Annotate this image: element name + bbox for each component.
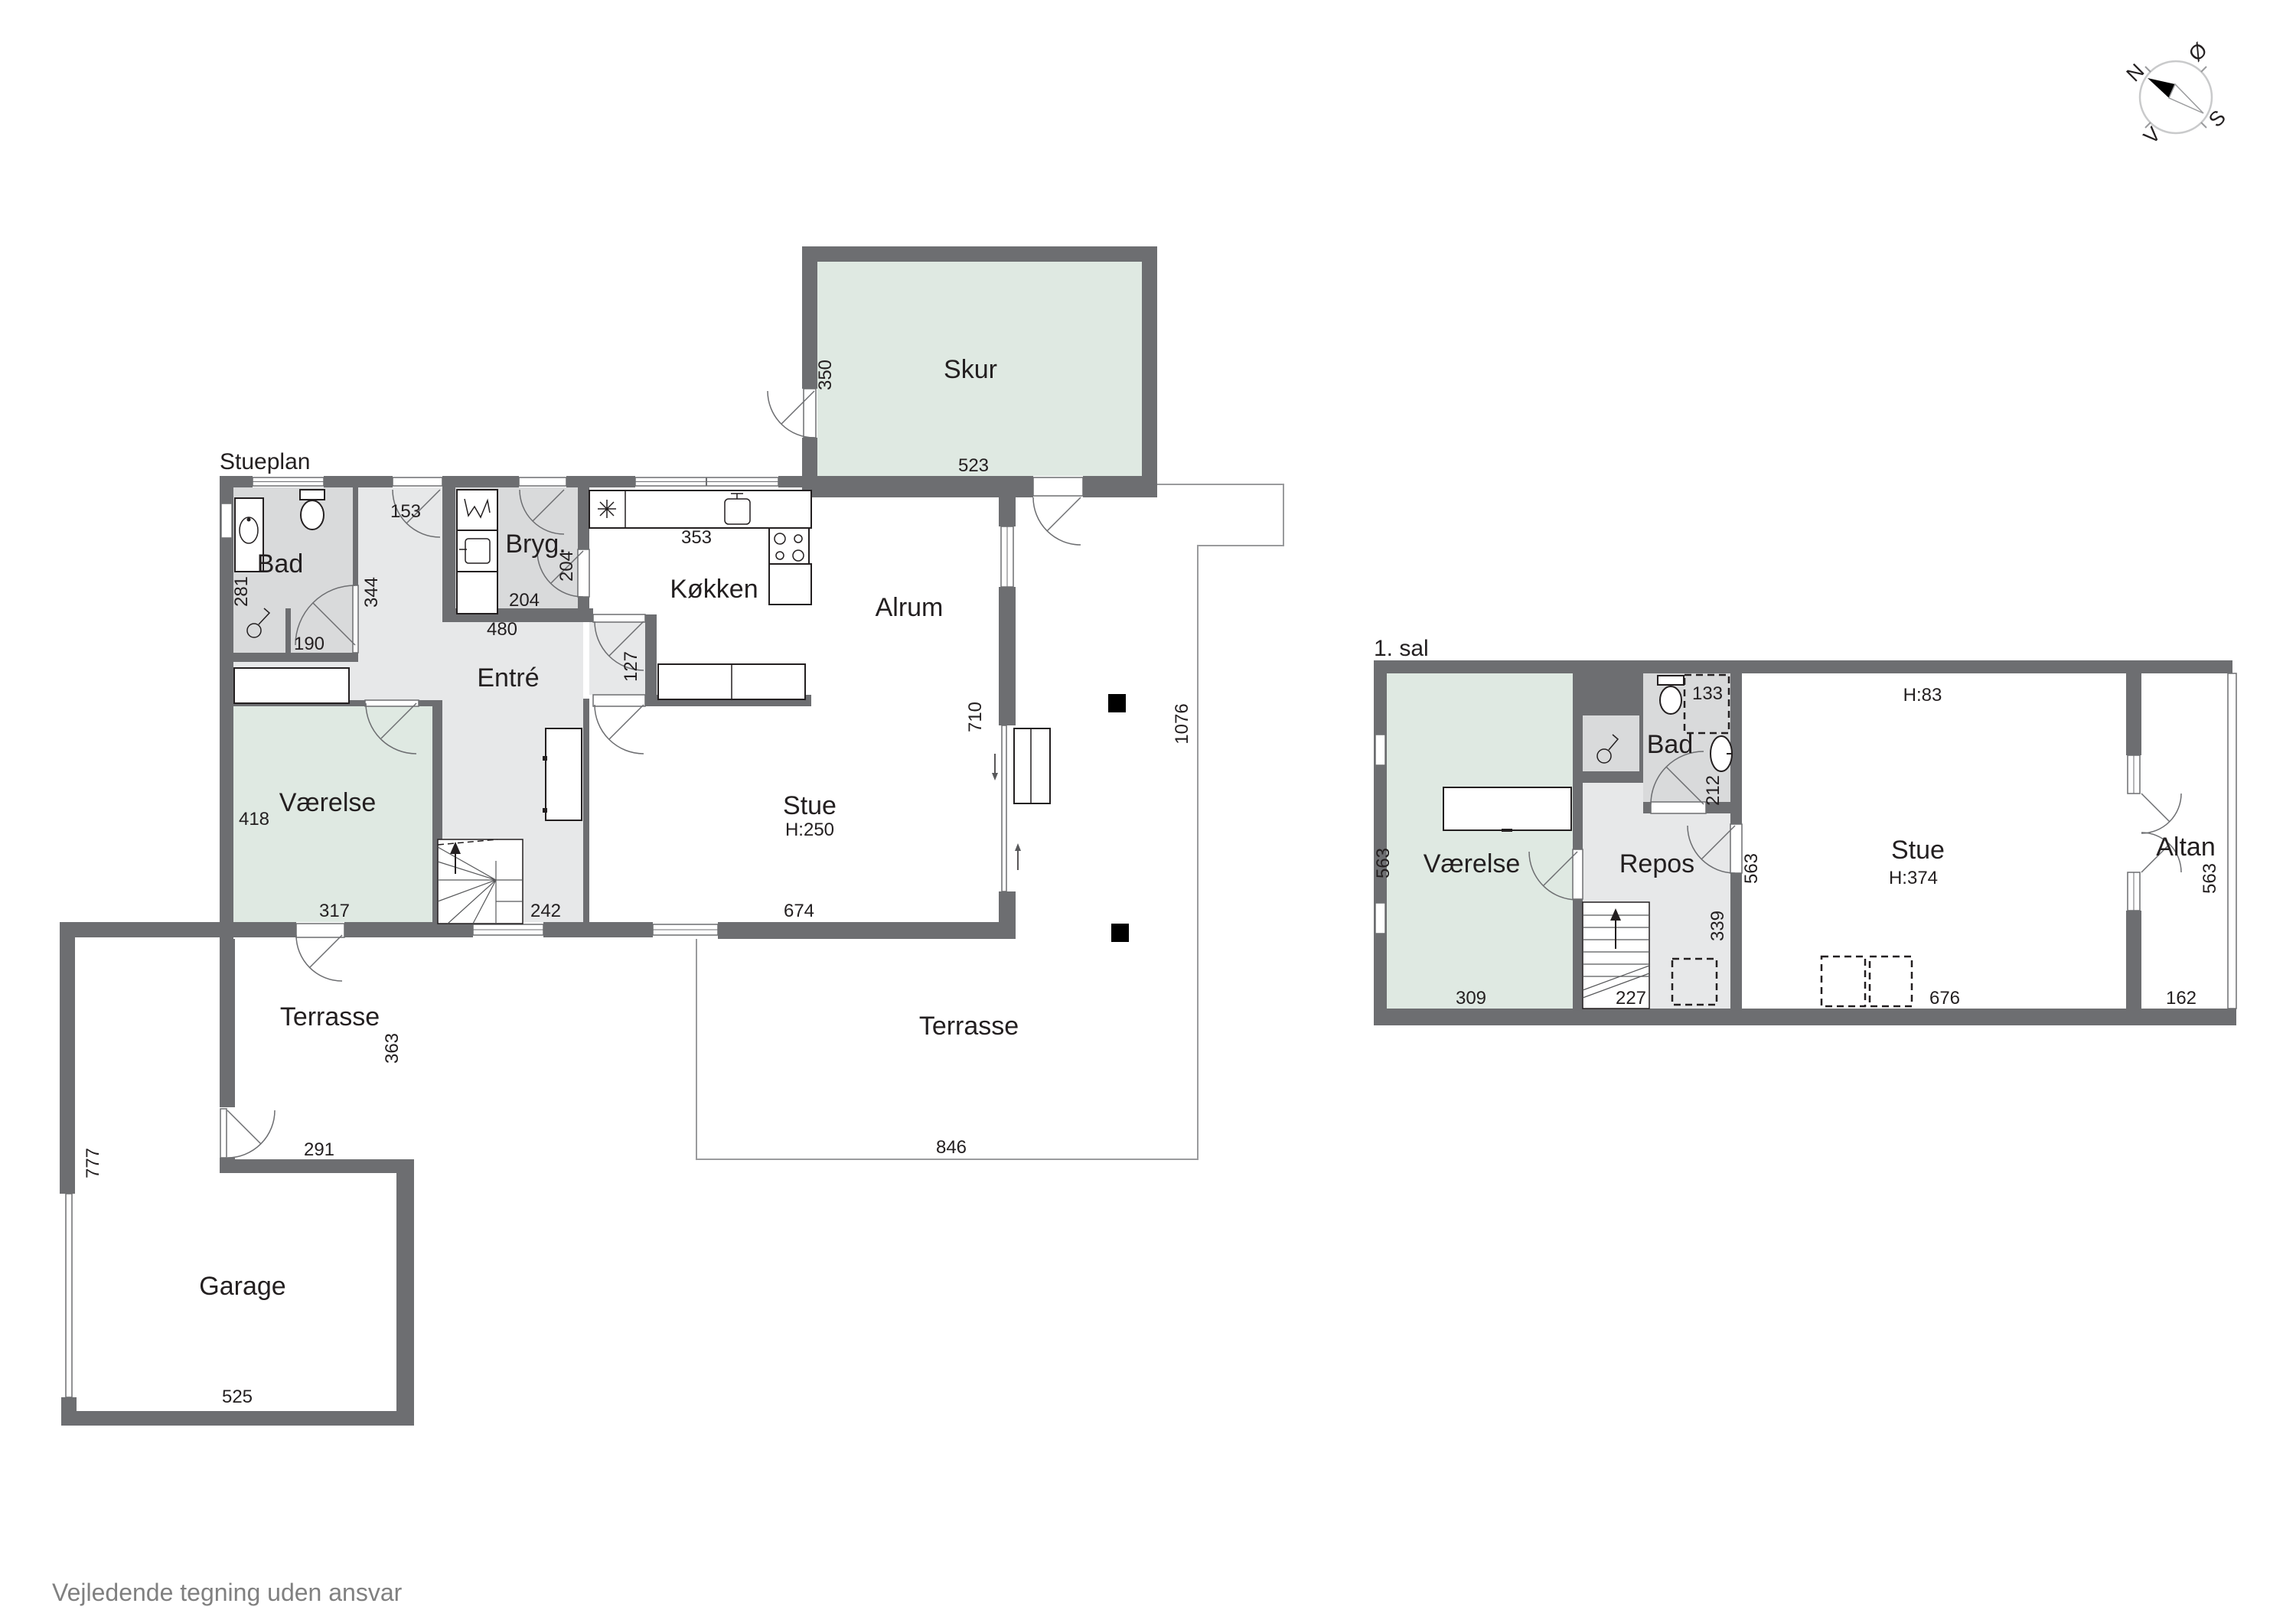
terrasse-main-label: Terrasse	[919, 1012, 1019, 1041]
upper-window-west-2	[1375, 903, 1385, 934]
window-south-stue	[653, 924, 718, 935]
compass-rose: N Ø S V	[2122, 38, 2229, 148]
upper-stair-width-dim: 227	[1616, 988, 1646, 1009]
kokken-width-dim: 353	[681, 527, 712, 548]
skur-width-dim: 523	[958, 455, 989, 476]
wardrobe-hall	[234, 668, 349, 703]
side-height-dim: 363	[382, 1033, 403, 1064]
vaerelse-height-dim: 418	[239, 809, 269, 829]
window-west-bad	[221, 504, 232, 538]
compass-north-label: N	[2122, 59, 2148, 86]
sideboard-stue	[1014, 728, 1050, 803]
toilet-icon	[300, 490, 325, 530]
laundry-icons	[457, 490, 497, 614]
upper-vaerelse-width-dim: 309	[1456, 988, 1486, 1009]
upper-vaerelse-height-dim: 563	[1373, 848, 1394, 878]
terrasse-side-label: Terrasse	[280, 1002, 380, 1031]
wardrobe-entre	[543, 728, 582, 820]
kokken-label: Køkken	[670, 575, 758, 604]
upper-bad-label: Bad	[1647, 730, 1694, 759]
terrasse-height-dim: 1076	[1172, 703, 1192, 744]
kitchen-cabinet	[769, 564, 811, 605]
upper-shower-niche-area	[1583, 715, 1639, 771]
terrasse-post-south	[1111, 924, 1129, 942]
upper-toilet-icon	[1658, 676, 1684, 714]
upper-title: 1. sal	[1374, 636, 1429, 661]
door-vaerelse-terrasse	[296, 924, 344, 981]
upper-stue-ceiling-label: H:374	[1889, 868, 1938, 888]
entre-label: Entré	[477, 663, 539, 693]
vaerelse-label: Værelse	[279, 788, 377, 817]
window-south-entre	[473, 924, 543, 935]
upper-knee-height-label: H:83	[1903, 685, 1942, 706]
upper-stue-width-dim: 676	[1929, 988, 1960, 1009]
ground-stair	[438, 839, 523, 924]
bryg-width-dim: 204	[509, 590, 540, 611]
kitchen-island	[658, 664, 805, 699]
altan-width-dim: 162	[2166, 988, 2197, 1009]
compass-east-label: Ø	[2184, 38, 2212, 66]
side-width-dim: 291	[304, 1139, 334, 1160]
compass-west-label: V	[2139, 122, 2165, 148]
floorplan-page: Stueplan Skur 350 523 Bad 281 344 190 15…	[0, 0, 2296, 1623]
stair-width-dim: 242	[530, 901, 561, 921]
stue-velux-dashed-1	[1821, 957, 1865, 1006]
garage-label: Garage	[199, 1272, 285, 1301]
compass-needle-icon	[2148, 78, 2203, 113]
skur-depth-dim: 350	[815, 360, 836, 390]
compass-south-label: S	[2204, 106, 2230, 132]
vaerelse-width-dim: 317	[319, 901, 350, 921]
altan-height-dim: 563	[2200, 863, 2220, 894]
upper-bad-height-dim: 212	[1703, 775, 1724, 806]
upper-window-altan-2	[2128, 872, 2140, 911]
upper-window-altan-1	[2128, 755, 2140, 794]
stue-velux-dashed-2	[1870, 957, 1912, 1006]
stue-height-label: H:250	[785, 820, 834, 840]
upper-shower-dim: 133	[1692, 683, 1723, 704]
window-north-kokken	[635, 477, 778, 486]
repos-label: Repos	[1619, 849, 1694, 878]
bad-label: Bad	[257, 549, 304, 578]
upper-window-west-1	[1375, 735, 1385, 765]
garage-width-dim: 525	[222, 1387, 253, 1407]
ground-floor-plan: Stueplan Skur 350 523 Bad 281 344 190 15…	[60, 246, 1283, 1426]
alrum-label: Alrum	[876, 593, 944, 622]
passage-dim: 127	[621, 651, 641, 682]
upper-sink-icon	[1711, 736, 1732, 771]
door-passage-south	[593, 695, 645, 754]
skur-label: Skur	[944, 355, 997, 384]
upper-floor-plan: 1. sal Værelse 563 309 Repos 227 Bad 133…	[1373, 636, 2236, 1025]
terrasse-post-north	[1108, 694, 1126, 712]
floorplan-drawing: Stueplan Skur 350 523 Bad 281 344 190 15…	[0, 0, 2296, 1623]
stue-label: Stue	[783, 791, 837, 820]
garage-height-dim: 777	[83, 1148, 103, 1178]
upper-vaerelse-area	[1387, 673, 1573, 1009]
door-skur-west	[768, 389, 816, 438]
door-terrasse-court	[220, 1109, 275, 1158]
upper-stue-height-dim: 563	[1741, 853, 1762, 884]
shower-width-dim: 190	[294, 634, 325, 654]
altan-railing	[2228, 673, 2236, 1009]
stue-width-dim: 674	[784, 901, 814, 921]
stove-icon	[769, 528, 809, 564]
window-east-alrum	[1001, 526, 1013, 587]
bad-height-dim: 281	[231, 576, 252, 607]
door-top-dim: 153	[390, 501, 421, 522]
kitchen-counter	[589, 490, 811, 528]
fridge-icon	[598, 500, 616, 518]
ground-title: Stueplan	[220, 449, 310, 474]
entre-height-dim: 344	[361, 577, 382, 608]
garage-open-side	[66, 1194, 72, 1397]
upper-wardrobe	[1443, 787, 1571, 832]
altan-label: Altan	[2156, 833, 2216, 862]
alrum-height-dim: 710	[965, 702, 986, 732]
bryg-door-dim: 204	[556, 551, 577, 582]
repos-height-dim: 339	[1707, 911, 1728, 941]
window-north-bad	[253, 477, 324, 486]
terrasse-width-dim: 846	[936, 1137, 967, 1158]
disclaimer-text: Vejledende tegning uden ansvar	[52, 1579, 403, 1606]
upper-stue-label: Stue	[1891, 836, 1945, 865]
upper-vaerelse-label: Værelse	[1424, 849, 1521, 878]
entre-width-dim: 480	[487, 619, 517, 640]
door-skur-south	[1033, 477, 1083, 545]
